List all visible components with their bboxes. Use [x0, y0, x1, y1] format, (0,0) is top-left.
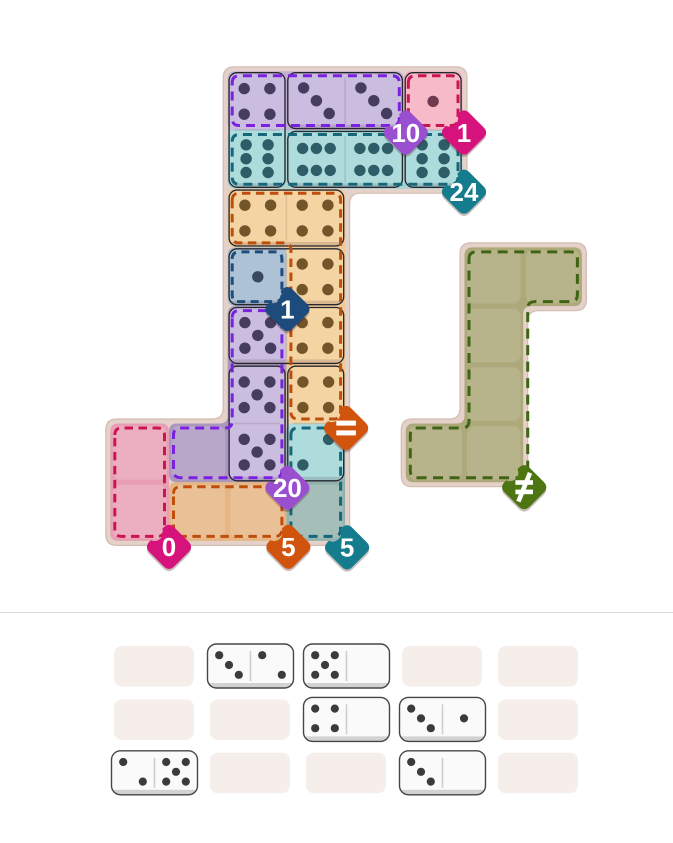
svg-text:1: 1 [280, 294, 294, 324]
svg-text:0: 0 [162, 532, 176, 562]
svg-text:5: 5 [340, 533, 354, 563]
svg-text:1: 1 [457, 118, 471, 148]
svg-text:20: 20 [273, 473, 302, 503]
svg-text:24: 24 [450, 177, 479, 207]
svg-text:10: 10 [391, 118, 420, 148]
svg-text:5: 5 [281, 532, 295, 562]
